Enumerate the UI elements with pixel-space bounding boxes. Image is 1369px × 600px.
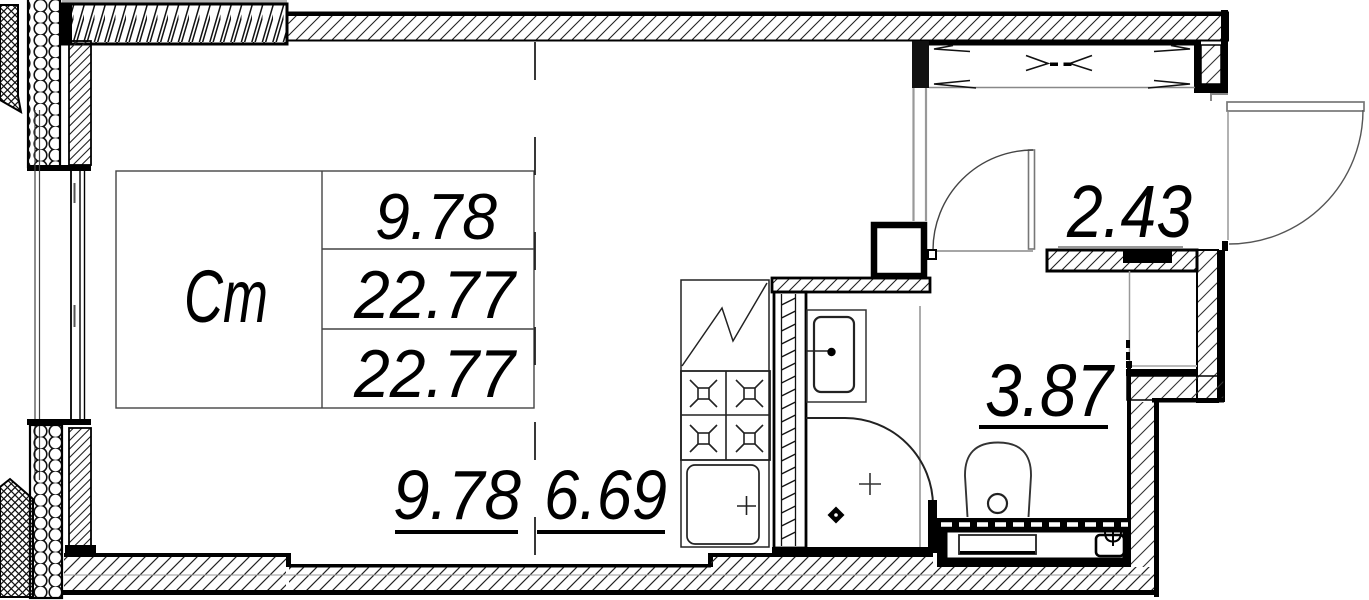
svg-text:9.78: 9.78 (375, 181, 497, 253)
svg-text:2.43: 2.43 (1066, 170, 1192, 253)
svg-text:22.77: 22.77 (353, 336, 517, 412)
svg-text:9.78: 9.78 (393, 456, 521, 534)
svg-text:6.69: 6.69 (544, 456, 667, 534)
svg-text:3.87: 3.87 (985, 349, 1116, 432)
svg-text:Ст: Ст (184, 255, 268, 338)
svg-text:22.77: 22.77 (353, 257, 517, 333)
